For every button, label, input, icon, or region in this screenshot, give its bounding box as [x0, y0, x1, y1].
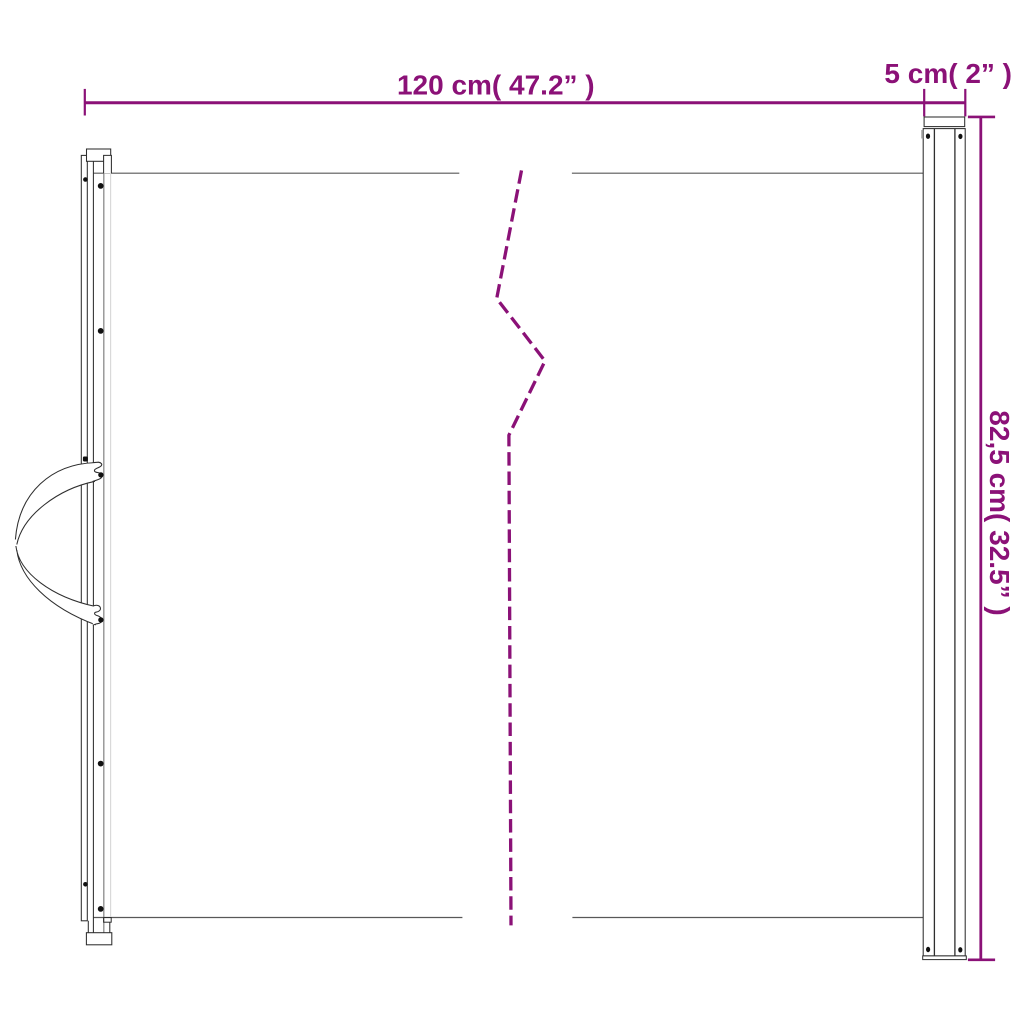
svg-text:5 cm( 2” ): 5 cm( 2” ): [884, 58, 1012, 89]
svg-text:82,5 cm( 32.5” ): 82,5 cm( 32.5” ): [984, 410, 1015, 615]
svg-text:120 cm( 47.2” ): 120 cm( 47.2” ): [397, 70, 595, 101]
